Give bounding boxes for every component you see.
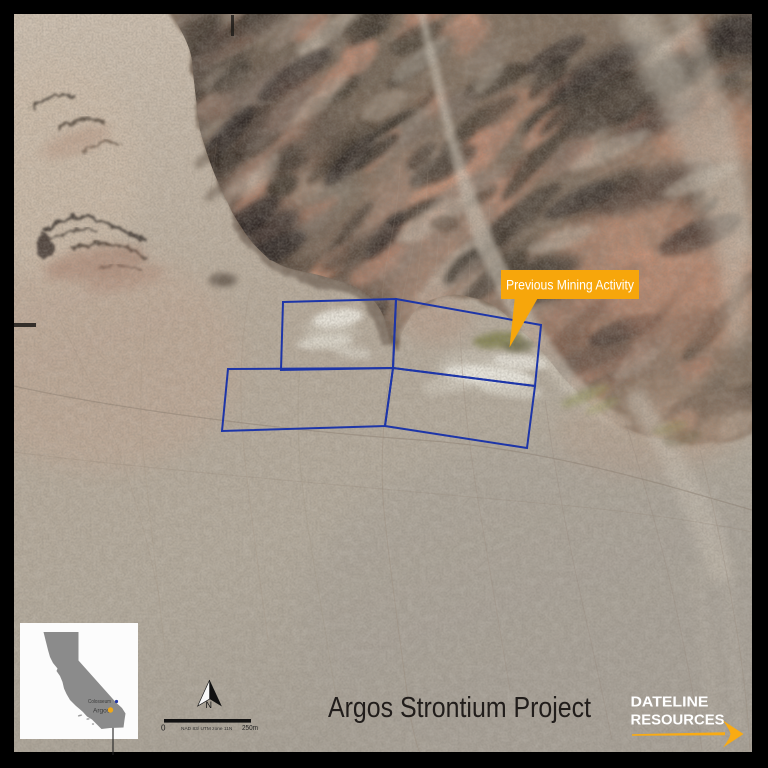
- svg-text:DATELINE: DATELINE: [631, 695, 709, 711]
- svg-text:Previous Mining Activity: Previous Mining Activity: [506, 278, 634, 293]
- svg-text:250m: 250m: [242, 723, 258, 732]
- svg-text:N: N: [206, 700, 213, 710]
- svg-text:Argos Strontium Project: Argos Strontium Project: [328, 692, 591, 724]
- svg-text:0: 0: [161, 724, 166, 733]
- svg-text:Colosseum: Colosseum: [88, 699, 111, 705]
- svg-text:RESOURCES: RESOURCES: [631, 713, 725, 729]
- svg-text:NAD 83/ UTM zone 11N: NAD 83/ UTM zone 11N: [181, 726, 233, 732]
